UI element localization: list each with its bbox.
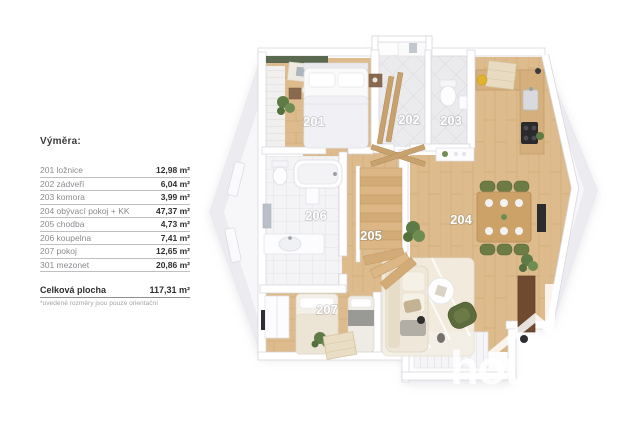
faucet-icon <box>529 87 533 91</box>
room-name: 301 mezonet <box>40 261 89 271</box>
cooktop-icon <box>521 122 538 144</box>
room-name: 204 obývací pokoj + KK <box>40 207 130 217</box>
kettle-icon <box>535 68 541 74</box>
double-bed-icon <box>304 63 368 148</box>
watermark-text: hous <box>450 341 557 394</box>
entry-niche <box>398 40 428 56</box>
legend-row-301: 301 mezonet 20,86 m² <box>40 259 190 273</box>
chair-icon <box>514 244 529 255</box>
dining-set <box>477 181 531 255</box>
bathtub-icon <box>294 160 342 188</box>
room-area: 47,37 m² <box>156 207 190 217</box>
lamp-icon <box>373 78 378 83</box>
room-name: 207 pokoj <box>40 247 77 257</box>
room-name: 203 komora <box>40 193 85 203</box>
floor-lamp-icon <box>417 316 425 324</box>
tv-icon <box>261 310 265 330</box>
nightstand-icon <box>289 88 301 99</box>
sink-icon <box>523 90 538 110</box>
room-name: 201 ložnice <box>40 166 83 176</box>
room-area: 3,99 m² <box>161 193 190 203</box>
room-area: 7,41 m² <box>161 234 190 244</box>
coffee-table-icon <box>428 278 454 304</box>
room-area: 20,86 m² <box>156 261 190 271</box>
stair-railing <box>356 166 360 262</box>
room-name: 202 zádveří <box>40 180 84 190</box>
legend-title: Výměra: <box>40 136 190 147</box>
shelf-icon <box>459 96 467 109</box>
legend-row-207: 207 pokoj 12,65 m² <box>40 245 190 259</box>
wardrobe-icon <box>265 296 289 338</box>
chair-icon <box>480 244 495 255</box>
room-area: 12,98 m² <box>156 166 190 176</box>
radiator-icon <box>263 204 271 228</box>
room-area: 12,65 m² <box>156 247 190 257</box>
window-slit-icon <box>409 43 417 53</box>
pouf-icon <box>437 333 445 343</box>
roof-slope-left <box>210 55 262 356</box>
room-label-204: 204 <box>450 212 472 227</box>
legend-row-205: 205 chodba 4,73 m² <box>40 218 190 232</box>
fruit-bowl-icon <box>477 75 487 85</box>
plant-icon <box>536 132 544 140</box>
room-name: 205 chodba <box>40 220 84 230</box>
room-name: 206 koupelna <box>40 234 91 244</box>
room-label-203: 203 <box>440 113 462 128</box>
toilet-icon <box>272 161 288 185</box>
legend-row-201: 201 ložnice 12,98 m² <box>40 164 190 178</box>
room-label-201: 201 <box>303 114 325 129</box>
chair-icon <box>480 181 495 192</box>
room-label-206: 206 <box>305 208 327 223</box>
legend-row-202: 202 zádveří 6,04 m² <box>40 178 190 192</box>
legend-total-row: Celková plocha 117,31 m² <box>40 285 190 298</box>
legend-row-204: 204 obývací pokoj + KK 47,37 m² <box>40 205 190 219</box>
room-label-202: 202 <box>398 112 420 127</box>
legend-row-206: 206 koupelna 7,41 m² <box>40 232 190 246</box>
area-legend: Výměra: 201 ložnice 12,98 m² 202 zádveří… <box>40 136 190 307</box>
tv-icon <box>537 204 546 232</box>
total-area: 117,31 m² <box>149 285 190 295</box>
chair-icon <box>497 181 512 192</box>
watermark-roof-icon <box>545 284 555 332</box>
chair-icon <box>497 244 512 255</box>
washbasin-icon <box>264 234 324 254</box>
legend-footnote: *uvedené rozměry jsou pouze orientační <box>40 300 190 307</box>
floorplan-page: Výměra: 201 ložnice 12,98 m² 202 zádveří… <box>0 0 640 426</box>
skylight-panel-icon <box>486 60 517 89</box>
room-area: 6,04 m² <box>161 180 190 190</box>
chair-icon <box>514 181 529 192</box>
room-area: 4,73 m² <box>161 220 190 230</box>
skylight-panel-icon <box>323 332 357 360</box>
toilet-icon <box>440 80 456 106</box>
room-label-207: 207 <box>316 302 338 317</box>
sideboard-icon <box>436 148 474 161</box>
legend-row-203: 203 komora 3,99 m² <box>40 191 190 205</box>
room-label-205: 205 <box>360 228 382 243</box>
total-label: Celková plocha <box>40 285 106 295</box>
accent-wall-green <box>266 56 328 63</box>
